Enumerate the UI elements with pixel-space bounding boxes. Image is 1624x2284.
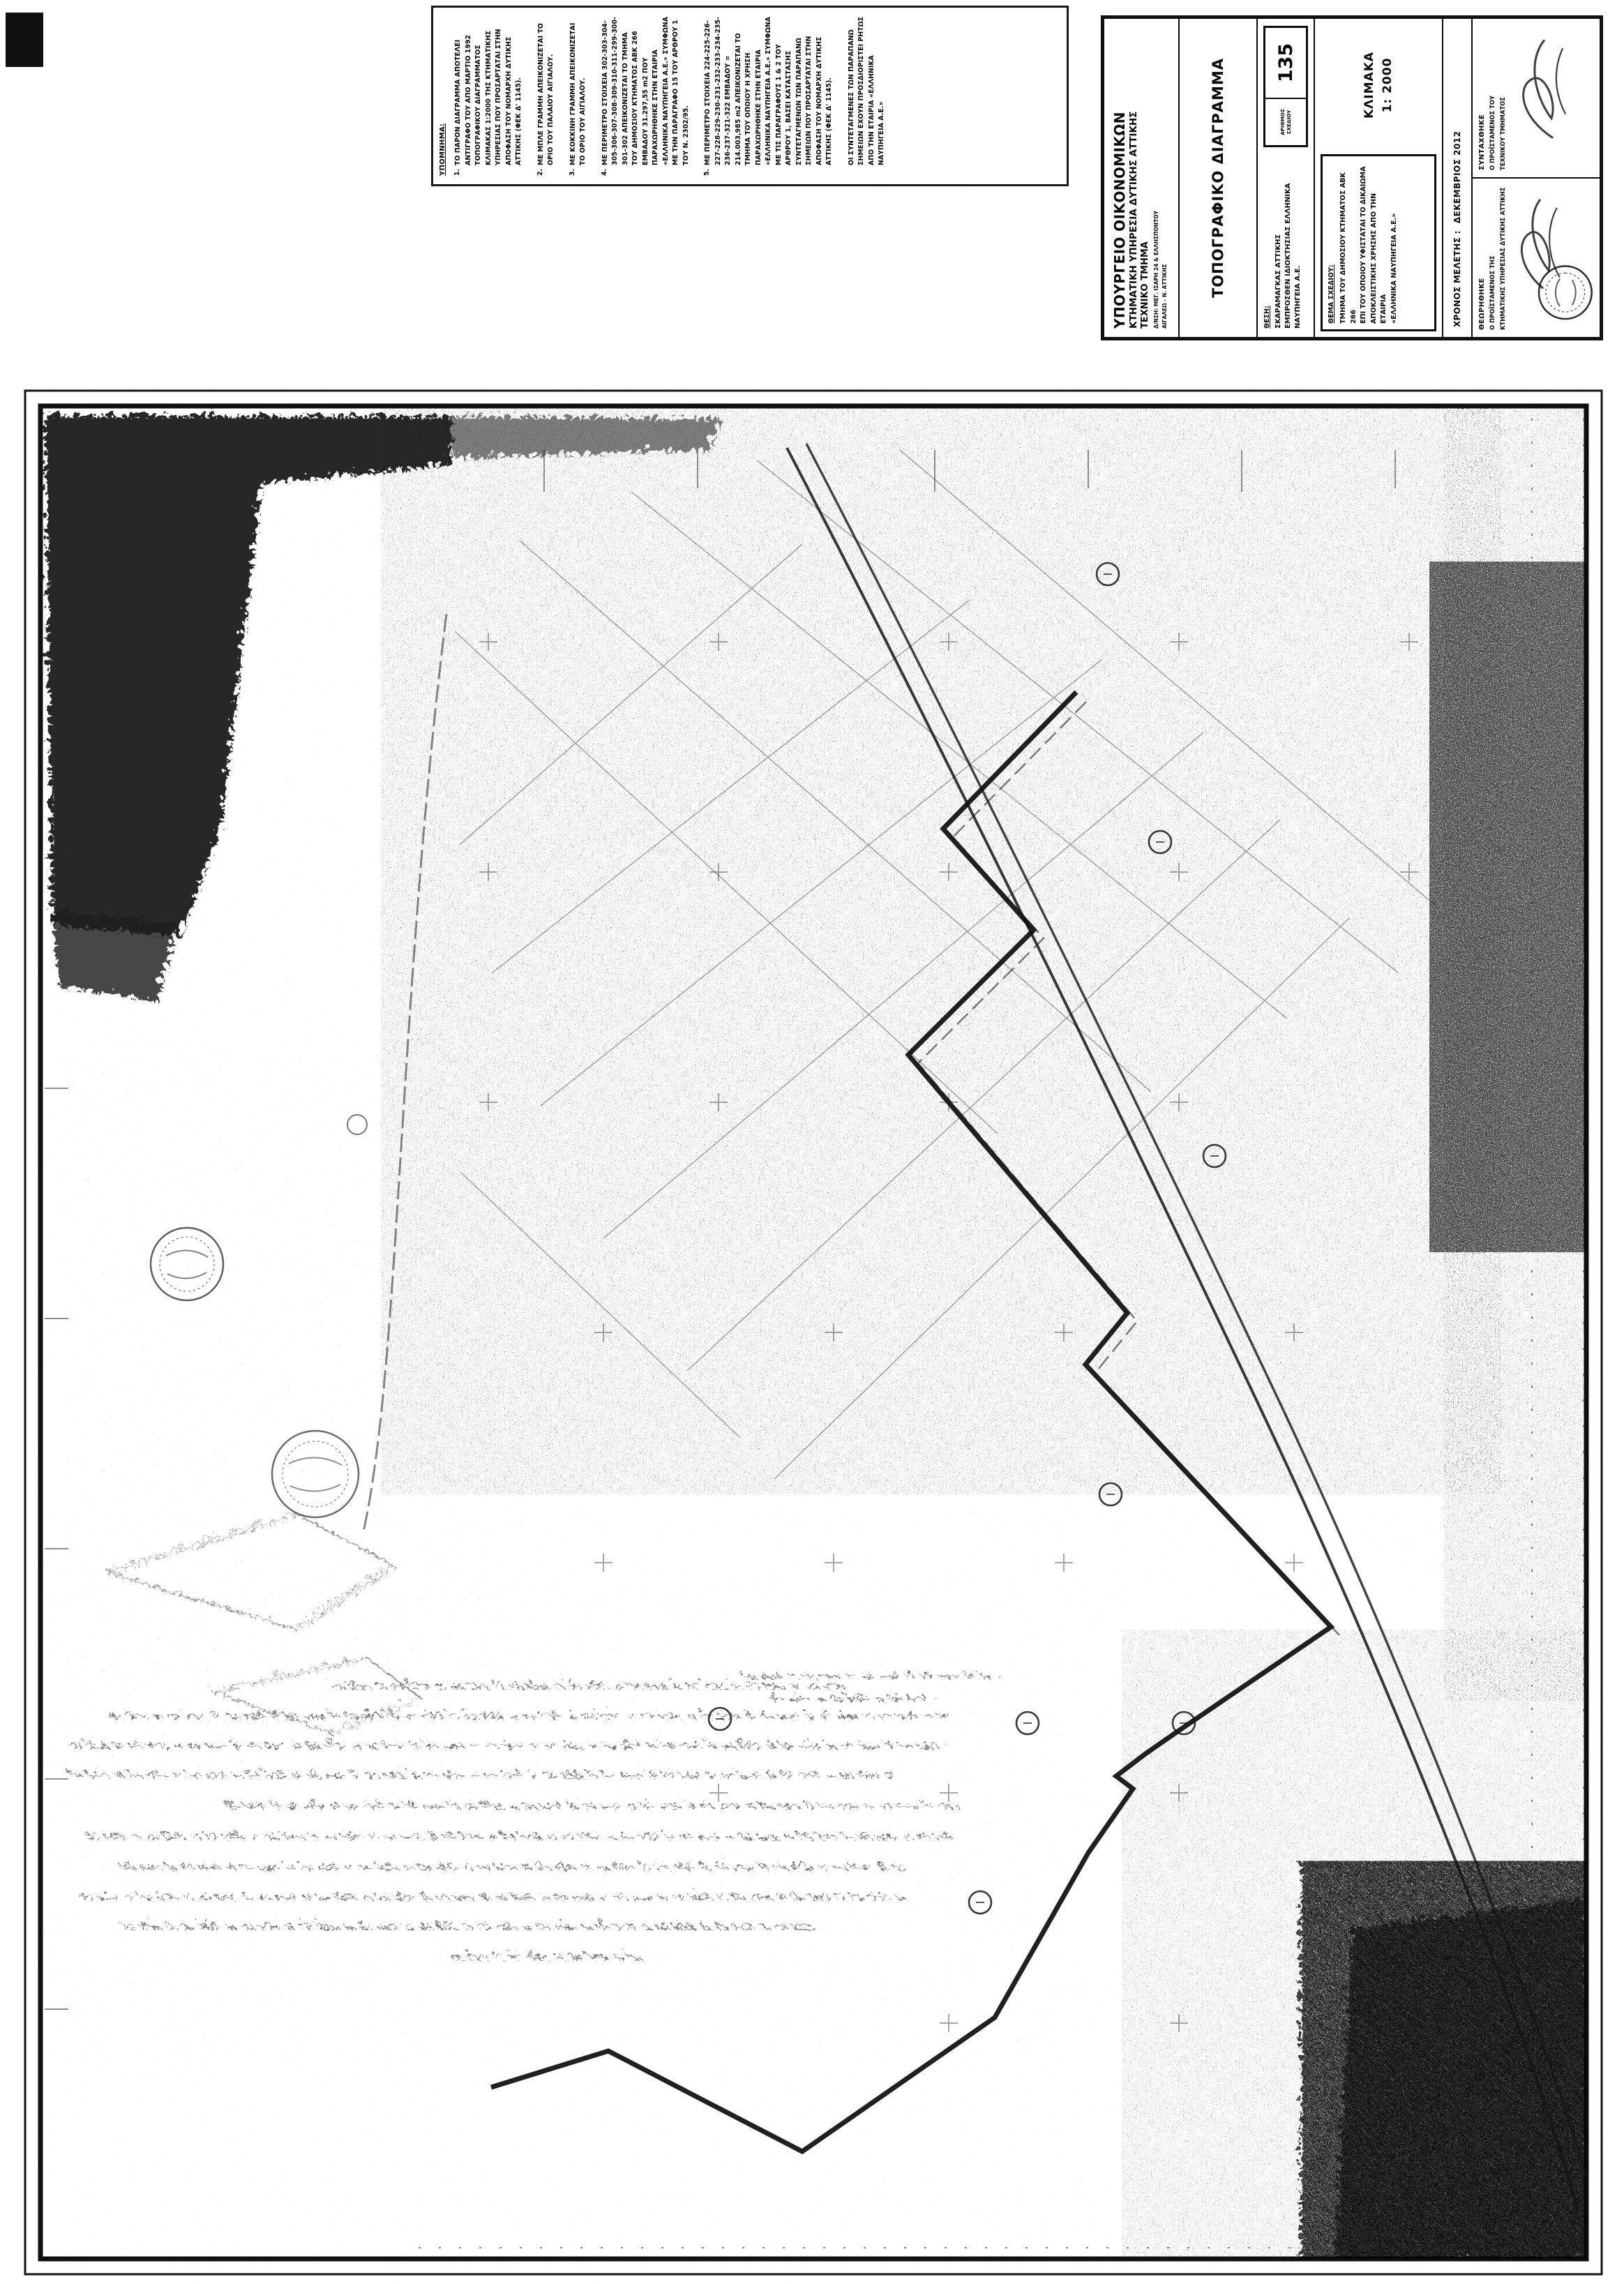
drafted-label: ΣΥΝΤΑΧΘΗΚΕ [1478,23,1486,170]
location-line2: ΕΜΠΡΟΣΘΕΝ ΙΔΙΟΚΤΗΣΙΑΣ ΕΛΛΗΝΙΚΑ ΝΑΥΠΗΓΕΙΑ… [1284,151,1303,329]
map-content [42,409,1592,2274]
department-name: ΤΕΧΝΙΚΟ ΤΜΗΜΑ [1140,24,1151,329]
reviewed-signature-cell: ΘΕΩΡΗΘΗΚΕ Ο ΠΡΟΪΣΤΑΜΕΝΟΣ ΤΗΣ ΚΤΗΜΑΤΙΚΗΣ … [1473,179,1600,337]
note-text: ΜΕ ΠΕΡΙΜΕΤΡΟ ΣΤΟΙΧΕΙΑ 224-225-226-227-22… [703,15,835,165]
note-number: 2. [536,165,557,176]
legend-heading: ΥΠΟΜΝΗΜΑ: [439,15,446,176]
legend-notes-rotated: ΥΠΟΜΝΗΜΑ: 1. ΤΟ ΠΑΡΟΝ ΔΙΑΓΡΑΜΜΑ ΑΠΟΤΕΛΕΙ… [433,8,1067,184]
study-date-row: ΧΡΟΝΟΣ ΜΕΛΕΤΗΣ : ΔΕΚΕΜΒΡΙΟΣ 2012 [1442,19,1471,337]
study-date-value: ΔΕΚΕΜΒΡΙΟΣ 2012 [1452,130,1462,223]
service-address-line1: Δ/ΝΣΗ: ΜΕΓ. ΙΣΑΡΗ 24 & ΕΛΛΗΣΠΟΝΤΟΥ [1153,24,1159,329]
sheet-number-value: 135 [1265,28,1306,98]
scan-corner-mark [6,13,43,67]
subject-box: ΘΕΜΑ ΣΧΕΔΙΟΥ: ΤΜΗΜΑ ΤΟΥ ΔΗΜΟΣΙΟΥ ΚΤΗΜΑΤΟ… [1321,154,1436,331]
subject-line3: ΑΠΟΚΛΕΙΣΤΙΚΗΣ ΧΡΗΣΗΣ ΑΠΟ ΤΗΝ ΕΤΑΙΡΙΑ [1369,162,1390,324]
drawing-type-row: ΤΟΠΟΓΡΑΦΙΚΟ ΔΙΑΓΡΑΜΜΑ [1178,19,1256,337]
note-number: 4. [601,165,692,176]
service-address-line2: ΑΙΓΑΛΕΩ - Ν. ΑΤΤΙΚΗΣ [1161,24,1168,329]
subject-label: ΘΕΜΑ ΣΧΕΔΙΟΥ: [1328,162,1335,324]
legend-note-2: 2. ΜΕ ΜΠΛΕ ΓΡΑΜΜΗ ΑΠΕΙΚΟΝΙΖΕΤΑΙ ΤΟ ΟΡΙΟ … [536,15,557,176]
legend-note-6: ΟΙ ΣΥΝΤΕΤΑΓΜΕΝΕΣ ΤΩΝ ΠΑΡΑΠΑΝΩ ΣΗΜΕΙΩΝ ΕΧ… [847,15,887,176]
note-number: 5. [703,165,835,176]
toner-blob-bottom-right [1311,1870,1586,2260]
note-text: ΜΕ ΚΟΚΚΙΝΗ ΓΡΑΜΜΗ ΑΠΕΙΚΟΝΙΖΕΤΑΙ ΤΟ ΟΡΙΟ … [569,15,589,165]
study-date-label: ΧΡΟΝΟΣ ΜΕΛΕΤΗΣ : [1452,230,1462,327]
location-cell: ΘΕΣΗ: ΣΚΑΡΑΜΑΓΚΑΣ ΑΤΤΙΚΗΣ ΕΜΠΡΟΣΘΕΝ ΙΔΙΟ… [1258,147,1314,337]
ministry-name: ΥΠΟΥΡΓΕΙΟ ΟΙΚΟΝΟΜΙΚΩΝ [1111,24,1128,329]
note-text: ΟΙ ΣΥΝΤΕΤΑΓΜΕΝΕΣ ΤΩΝ ΠΑΡΑΠΑΝΩ ΣΗΜΕΙΩΝ ΕΧ… [847,15,887,165]
location-label: ΘΕΣΗ: [1263,151,1271,329]
scanned-topographic-sheet: ΥΠΟΜΝΗΜΑ: 1. ΤΟ ΠΑΡΟΝ ΔΙΑΓΡΑΜΜΑ ΑΠΟΤΕΛΕΙ… [0,0,1624,2284]
round-stamp-icon [1539,266,1592,319]
location-line1: ΣΚΑΡΑΜΑΓΚΑΣ ΑΤΤΙΚΗΣ [1274,151,1284,329]
note-text: ΤΟ ΠΑΡΟΝ ΔΙΑΓΡΑΜΜΑ ΑΠΟΤΕΛΕΙ ΑΝΤΙΓΡΑΦΟ ΤΟ… [453,15,525,165]
scale-cell: ΚΛΙΜΑΚΑ 1: 2000 [1315,19,1442,151]
note-text: ΜΕ ΜΠΛΕ ΓΡΑΜΜΗ ΑΠΕΙΚΟΝΙΖΕΤΑΙ ΤΟ ΟΡΙΟ ΤΟΥ… [536,15,557,165]
sheet-number-box: ΑΡΙΘΜΟΣ ΣΧΕΔΙΟΥ 135 [1263,26,1308,147]
note-text: ΜΕ ΠΕΡΙΜΕΤΡΟ ΣΤΟΙΧΕΙΑ 302-303-304-305-30… [601,15,692,165]
toner-band-right [1437,593,1586,1221]
scale-label: ΚΛΙΜΑΚΑ [1362,52,1376,119]
title-block-rotated: ΥΠΟΥΡΓΕΙΟ ΟΙΚΟΝΟΜΙΚΩΝ ΚΤΗΜΑΤΙΚΗ ΥΠΗΡΕΣΙΑ… [1104,19,1600,337]
service-name: ΚΤΗΜΑΤΙΚΗ ΥΠΗΡΕΣΙΑ ΔΥΤΙΚΗΣ ΑΤΤΙΚΗΣ [1128,24,1140,329]
reviewed-label: ΘΕΩΡΗΘΗΚΕ [1478,183,1486,330]
subject-line1: ΤΜΗΜΑ ΤΟΥ ΔΗΜΟΣΙΟΥ ΚΤΗΜΑΤΟΣ ΑΒΚ 266 [1339,162,1359,324]
signature-scribble [1521,200,1559,288]
noise-urban-band [433,446,1451,1444]
legend-notes-block: ΥΠΟΜΝΗΜΑ: 1. ΤΟ ΠΑΡΟΝ ΔΙΑΓΡΑΜΜΑ ΑΠΟΤΕΛΕΙ… [431,6,1069,186]
title-header-row: ΥΠΟΥΡΓΕΙΟ ΟΙΚΟΝΟΜΙΚΩΝ ΚΤΗΜΑΤΙΚΗ ΥΠΗΡΕΣΙΑ… [1104,19,1178,337]
reviewed-title-line2: ΚΤΗΜΑΤΙΚΗΣ ΥΠΗΡΕΣΙΑΣ ΔΥΤΙΚΗΣ ΑΤΤΙΚΗΣ [1499,183,1507,330]
subject-line4: «ΕΛΛΗΝΙΚΑ ΝΑΥΠΗΓΕΙΑ Α.Ε.» [1390,162,1400,324]
signatures-row: ΘΕΩΡΗΘΗΚΕ Ο ΠΡΟΪΣΤΑΜΕΝΟΣ ΤΗΣ ΚΤΗΜΑΤΙΚΗΣ … [1471,19,1600,337]
legend-note-4: 4. ΜΕ ΠΕΡΙΜΕΤΡΟ ΣΤΟΙΧΕΙΑ 302-303-304-305… [601,15,692,176]
drafted-signature-cell: ΣΥΝΤΑΧΘΗΚΕ Ο ΠΡΟΪΣΤΑΜΕΝΟΣ ΤΟΥ ΤΕΧΝΙΚΟΥ Τ… [1473,19,1600,179]
drafted-title-line1: Ο ΠΡΟΪΣΤΑΜΕΝΟΣ ΤΟΥ [1489,23,1496,170]
scale-value: 1: 2000 [1381,58,1394,113]
subject-line2: ΕΠΙ ΤΟΥ ΟΠΟΙΟΥ ΥΦΙΣΤΑΤΑΙ ΤΟ ΔΙΚΑΙΩΜΑ [1359,162,1369,324]
reviewed-title-line1: Ο ΠΡΟΪΣΤΑΜΕΝΟΣ ΤΗΣ [1489,183,1496,330]
drawing-type-title: ΤΟΠΟΓΡΑΦΙΚΟ ΔΙΑΓΡΑΜΜΑ [1210,58,1226,298]
sheet-number-label: ΑΡΙΘΜΟΣ ΣΧΕΔΙΟΥ [1265,98,1306,145]
title-block: ΥΠΟΥΡΓΕΙΟ ΟΙΚΟΝΟΜΙΚΩΝ ΚΤΗΜΑΤΙΚΗ ΥΠΗΡΕΣΙΑ… [1101,15,1603,340]
noise-annotation-area [42,1605,1018,2037]
drafted-title-line2: ΤΕΧΝΙΚΟΥ ΤΜΗΜΑΤΟΣ [1499,23,1507,170]
signature-scribble [1524,40,1566,138]
map-canvas [0,0,1624,2284]
subject-row: ΘΕΜΑ ΣΧΕΔΙΟΥ: ΤΜΗΜΑ ΤΟΥ ΔΗΜΟΣΙΟΥ ΚΤΗΜΑΤΟ… [1314,19,1442,337]
note-number: 3. [569,165,589,176]
note-number: 1. [453,165,525,176]
location-row: ΘΕΣΗ: ΣΚΑΡΑΜΑΓΚΑΣ ΑΤΤΙΚΗΣ ΕΜΠΡΟΣΘΕΝ ΙΔΙΟ… [1256,19,1314,337]
legend-note-3: 3. ΜΕ ΚΟΚΚΙΝΗ ΓΡΑΜΜΗ ΑΠΕΙΚΟΝΙΖΕΤΑΙ ΤΟ ΟΡ… [569,15,589,176]
legend-note-5: 5. ΜΕ ΠΕΡΙΜΕΤΡΟ ΣΤΟΙΧΕΙΑ 224-225-226-227… [703,15,835,176]
legend-note-1: 1. ΤΟ ΠΑΡΟΝ ΔΙΑΓΡΑΜΜΑ ΑΠΟΤΕΛΕΙ ΑΝΤΙΓΡΑΦΟ… [453,15,525,176]
note-number [847,165,887,176]
